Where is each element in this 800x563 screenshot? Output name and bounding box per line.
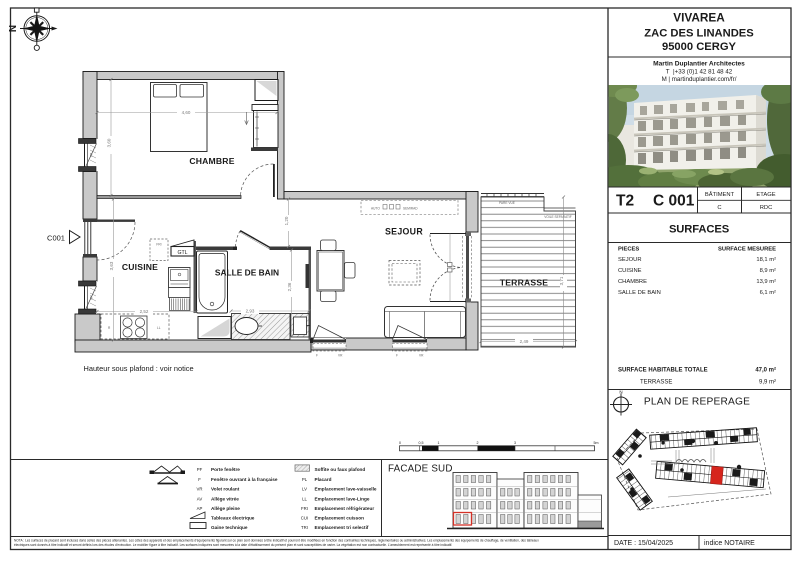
svg-text:2: 2: [477, 441, 479, 445]
svg-text:VR: VR: [197, 487, 203, 492]
svg-text:TRI: TRI: [301, 525, 308, 530]
svg-text:SALLE DE BAIN: SALLE DE BAIN: [215, 268, 279, 278]
svg-text:SALLE DE BAIN: SALLE DE BAIN: [618, 290, 661, 296]
svg-text:NOTA : Les surfaces de placard: NOTA : Les surfaces de placard sont incl…: [14, 539, 539, 543]
svg-text:PLAN DE REPERAGE: PLAN DE REPERAGE: [644, 397, 750, 408]
svg-text:T2: T2: [616, 193, 634, 210]
svg-text:Emplacement réfrigérateur: Emplacement réfrigérateur: [315, 506, 375, 511]
svg-text:0,5: 0,5: [419, 441, 424, 445]
svg-text:SEMIRAD: SEMIRAD: [403, 207, 418, 211]
svg-text:LL: LL: [157, 326, 161, 330]
svg-text:Porte fenêtre: Porte fenêtre: [211, 467, 240, 472]
svg-text:VIVAREA: VIVAREA: [673, 11, 725, 25]
svg-text:F: F: [316, 354, 318, 358]
svg-text:PL: PL: [302, 477, 308, 482]
svg-text:CHAMBRE: CHAMBRE: [618, 279, 647, 285]
svg-text:8,9 m²: 8,9 m²: [760, 268, 776, 274]
svg-text:6,1 m²: 6,1 m²: [760, 290, 776, 296]
svg-text:LL: LL: [302, 497, 307, 502]
svg-text:RDC: RDC: [760, 205, 773, 211]
svg-text:3: 3: [514, 441, 516, 445]
svg-text:VOILE SEPARATIF: VOILE SEPARATIF: [544, 215, 572, 219]
svg-text:C001: C001: [47, 234, 65, 243]
svg-text:PIECES: PIECES: [618, 247, 639, 253]
svg-text:2,49: 2,49: [520, 339, 529, 344]
svg-text:Placard: Placard: [315, 477, 332, 482]
svg-text:95000 CERGY: 95000 CERGY: [662, 41, 737, 53]
svg-text:TERRASSE: TERRASSE: [500, 278, 548, 288]
svg-text:3,63: 3,63: [109, 261, 114, 270]
svg-text:indice NOTAIRE: indice NOTAIRE: [704, 540, 755, 547]
svg-text:5m: 5m: [594, 441, 599, 445]
svg-text:VR: VR: [90, 152, 94, 157]
svg-text:SURFACE MESUREE: SURFACE MESUREE: [718, 247, 776, 253]
svg-text:Fenêtre ouvrant à la française: Fenêtre ouvrant à la française: [211, 477, 278, 482]
svg-text:Gaine technique: Gaine technique: [211, 525, 248, 530]
svg-text:PARE VUE: PARE VUE: [499, 201, 515, 205]
svg-text:1: 1: [438, 441, 440, 445]
svg-text:M | martinduplantier.com/fr/: M | martinduplantier.com/fr/: [662, 76, 737, 83]
svg-text:N: N: [8, 25, 19, 32]
svg-text:ETAGE: ETAGE: [756, 192, 775, 198]
svg-text:SEJOUR: SEJOUR: [385, 227, 423, 237]
svg-text:PF: PF: [197, 467, 203, 472]
svg-text:3,60: 3,60: [107, 138, 112, 147]
svg-text:Emplacement tri selectif: Emplacement tri selectif: [315, 525, 369, 530]
svg-text:FRI: FRI: [301, 506, 308, 511]
svg-text:2,52: 2,52: [140, 309, 149, 314]
svg-text:SURFACES: SURFACES: [669, 224, 730, 236]
svg-text:Tableaux électrique: Tableaux électrique: [211, 516, 255, 521]
svg-text:ZAC DES LINANDES: ZAC DES LINANDES: [644, 28, 754, 40]
svg-text:9,9 m²: 9,9 m²: [759, 380, 776, 386]
svg-text:2,93: 2,93: [246, 309, 255, 314]
svg-text:F: F: [198, 477, 201, 482]
svg-text:VR: VR: [338, 354, 343, 358]
svg-text:LV: LV: [302, 487, 307, 492]
svg-text:0: 0: [399, 441, 401, 445]
svg-text:AP: AP: [197, 506, 203, 511]
svg-text:Allège pleine: Allège pleine: [211, 506, 240, 511]
svg-text:électriques sont donnés à titr: électriques sont donnés à titre indicati…: [14, 543, 452, 547]
svg-text:FACADE SUD: FACADE SUD: [388, 464, 453, 475]
svg-text:C: C: [717, 205, 721, 211]
svg-text:SEJOUR: SEJOUR: [618, 257, 642, 263]
svg-text:Martin Duplantier Architectes: Martin Duplantier Architectes: [653, 61, 745, 68]
svg-text:Emplacement lave-Linge: Emplacement lave-Linge: [315, 497, 370, 502]
svg-text:18,1 m²: 18,1 m²: [756, 257, 776, 263]
svg-text:C 001: C 001: [653, 193, 695, 210]
svg-text:CUISINE: CUISINE: [618, 268, 642, 274]
svg-text:TERRASSE: TERRASSE: [640, 380, 672, 386]
svg-text:F: F: [396, 354, 398, 358]
svg-text:3,71: 3,71: [559, 276, 564, 285]
svg-text:Emplacement lave-vaisselle: Emplacement lave-vaisselle: [315, 487, 377, 492]
svg-text:N: N: [619, 390, 622, 395]
svg-text:AUTO: AUTO: [371, 207, 380, 211]
svg-text:CHAMBRE: CHAMBRE: [189, 156, 234, 166]
svg-text:47,0 m²: 47,0 m²: [755, 367, 776, 374]
svg-text:T |+33 (0)1 42 81 48 42: T |+33 (0)1 42 81 48 42: [666, 69, 733, 76]
svg-text:FRI: FRI: [156, 243, 161, 247]
svg-text:CUISINE: CUISINE: [122, 262, 158, 272]
svg-text:SURFACE HABITABLE TOTALE: SURFACE HABITABLE TOTALE: [618, 368, 708, 374]
svg-text:DATE : 15/04/2025: DATE : 15/04/2025: [614, 540, 673, 547]
svg-text:VR: VR: [419, 354, 424, 358]
svg-text:GTL: GTL: [177, 250, 187, 256]
svg-text:2,36: 2,36: [287, 282, 292, 291]
svg-text:Emplacement cuisson: Emplacement cuisson: [315, 516, 365, 521]
svg-text:1,20: 1,20: [284, 216, 289, 225]
svg-text:Hauteur sous plafond : voir no: Hauteur sous plafond : voir notice: [84, 364, 194, 373]
svg-text:VR: VR: [90, 295, 94, 300]
svg-text:4,60: 4,60: [182, 110, 191, 115]
svg-text:CUI: CUI: [301, 516, 308, 521]
svg-text:BÂTIMENT: BÂTIMENT: [705, 191, 735, 198]
svg-text:Soffite ou faux plafond: Soffite ou faux plafond: [315, 467, 366, 472]
svg-text:13,9 m²: 13,9 m²: [756, 279, 776, 285]
svg-text:Volet roulant: Volet roulant: [211, 487, 240, 492]
svg-text:AV: AV: [197, 497, 203, 502]
svg-text:Allège vitrée: Allège vitrée: [211, 497, 239, 502]
